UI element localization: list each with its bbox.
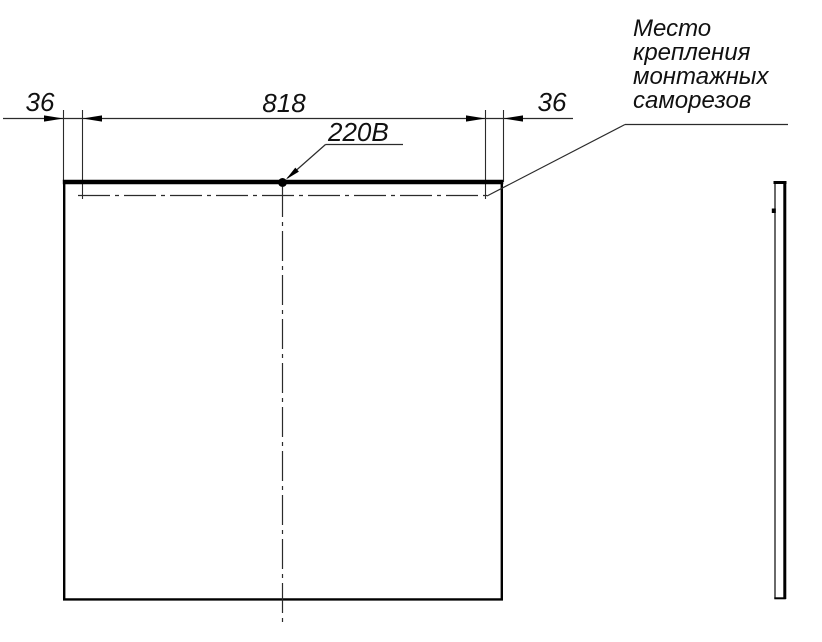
- note-callout: Место крепления монтажных саморезов: [487, 15, 788, 196]
- note-line-1: Место: [633, 15, 711, 42]
- dim-label-right: 36: [538, 87, 567, 117]
- side-view-mount-tick: [772, 209, 776, 214]
- power-point-dot: [278, 178, 287, 187]
- arrowhead-right-edge: [504, 115, 524, 121]
- note-line-2: крепления: [633, 39, 751, 66]
- arrowhead-right-screw: [466, 115, 486, 121]
- note-line-3: монтажных: [633, 63, 769, 90]
- technical-drawing-page: 36 818 36 220В Место крепления: [0, 0, 822, 642]
- voltage-label: 220В: [327, 117, 389, 147]
- arrowhead-left-screw: [83, 115, 103, 121]
- panel-front-view: [63, 178, 504, 624]
- voltage-callout: 220В: [286, 117, 403, 180]
- panel-side-view: [772, 182, 787, 600]
- note-line-4: саморезов: [633, 87, 751, 114]
- dim-label-center: 818: [262, 88, 306, 118]
- note-leader-line: [487, 125, 625, 197]
- dim-label-left: 36: [26, 87, 55, 117]
- drawing-canvas: 36 818 36 220В Место крепления: [0, 0, 822, 642]
